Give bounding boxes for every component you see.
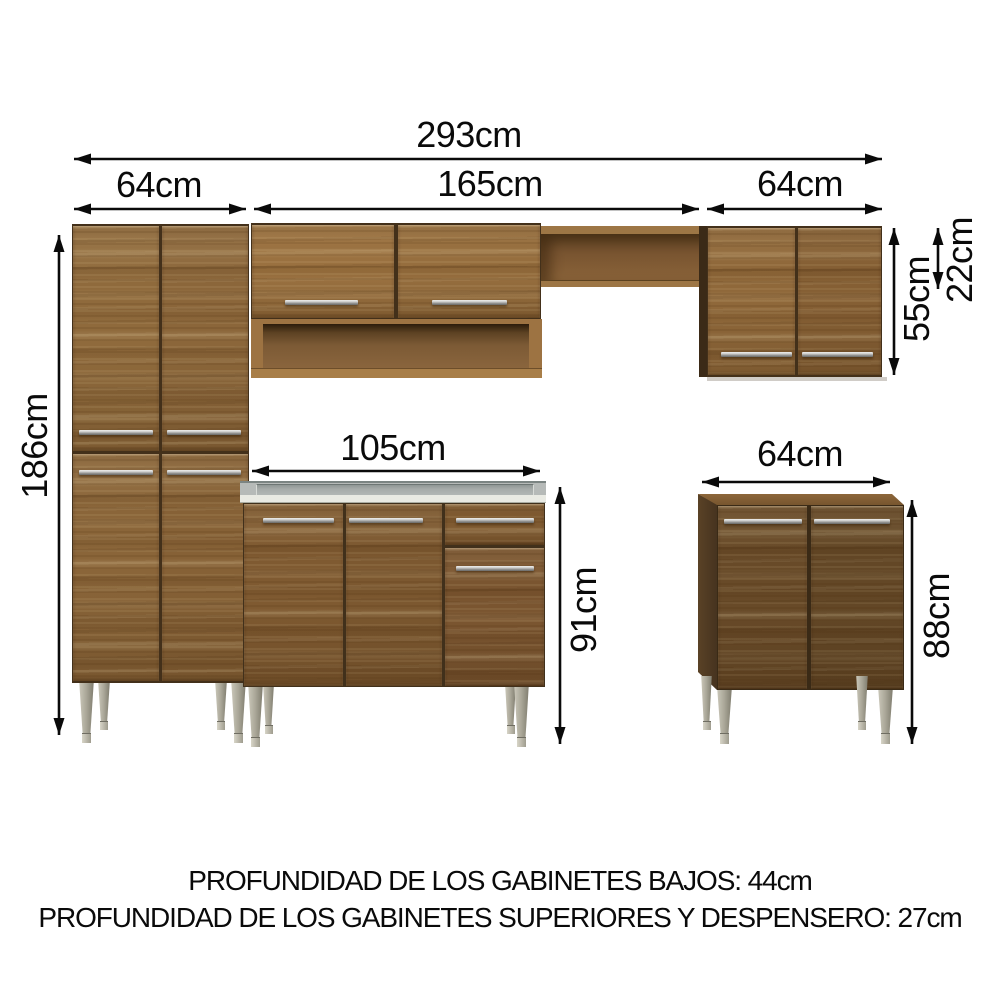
svg-text:293cm: 293cm	[416, 114, 522, 155]
svg-text:186cm: 186cm	[14, 393, 55, 499]
svg-text:64cm: 64cm	[757, 163, 843, 204]
svg-text:165cm: 165cm	[437, 163, 543, 204]
svg-text:22cm: 22cm	[939, 217, 980, 303]
svg-text:55cm: 55cm	[896, 256, 937, 342]
svg-text:105cm: 105cm	[340, 427, 446, 468]
svg-text:64cm: 64cm	[116, 164, 202, 205]
svg-text:88cm: 88cm	[916, 573, 957, 659]
svg-text:91cm: 91cm	[563, 567, 604, 653]
svg-text:64cm: 64cm	[757, 433, 843, 474]
